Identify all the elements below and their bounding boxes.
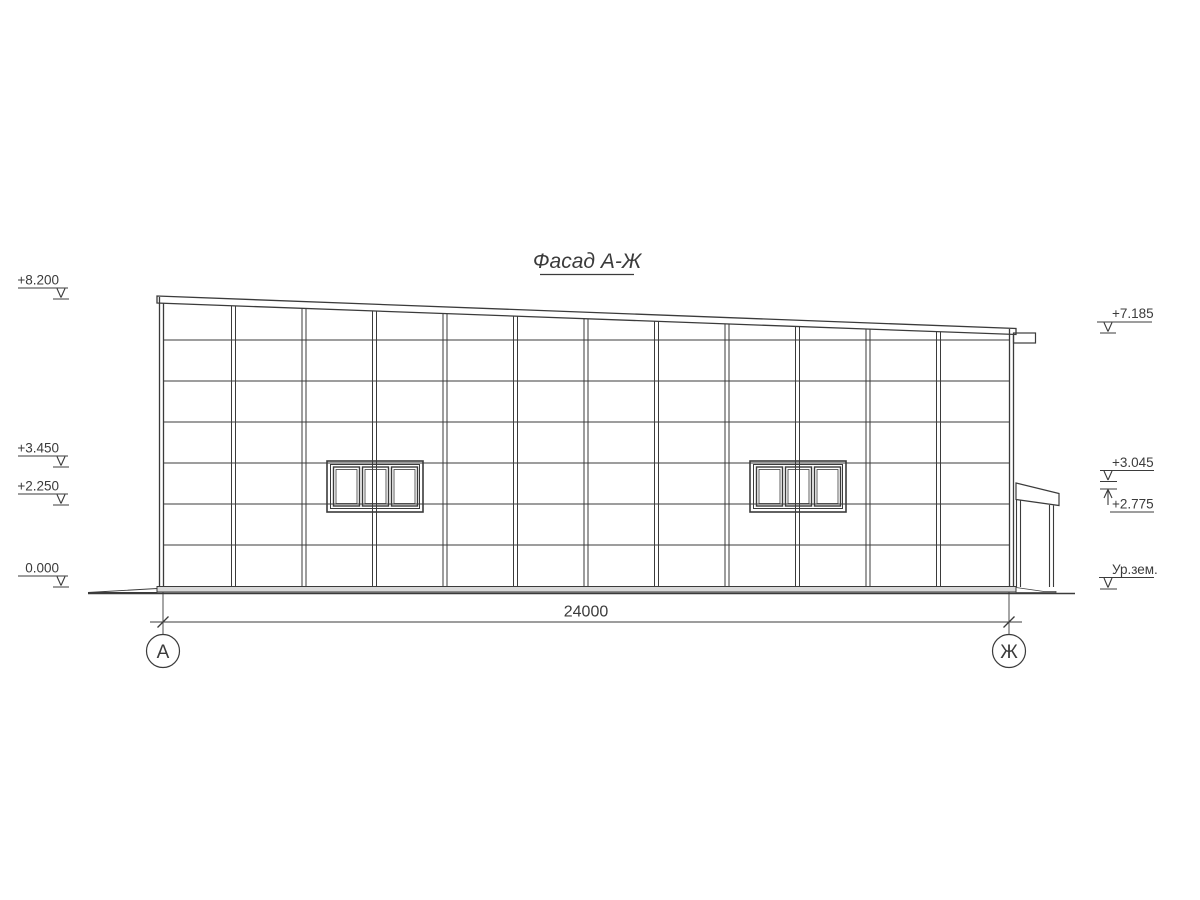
base-plinth — [157, 587, 1016, 593]
title-text: Фасад А-Ж — [533, 250, 643, 273]
window-pane — [334, 467, 360, 506]
window-inner-frame — [754, 465, 843, 509]
elevation-mark-plus2775: +2.775 — [1100, 489, 1154, 512]
elevation-label: +7.185 — [1112, 306, 1154, 321]
window-pane — [757, 467, 783, 506]
dimension-value: 24000 — [564, 604, 609, 621]
elevation-arrow-down — [1097, 322, 1152, 333]
annex-walls — [1017, 500, 1054, 588]
elevation-label: Ур.зем. — [1112, 562, 1158, 577]
elevation-label: +3.450 — [17, 441, 59, 456]
window-pane — [363, 467, 389, 506]
roof-band — [157, 296, 1016, 335]
window-inner-frame — [331, 465, 420, 509]
elevation-mark-plus2250: +2.250 — [17, 479, 69, 506]
dimension-group: 24000 А Ж — [147, 593, 1026, 668]
window-pane — [815, 467, 841, 506]
elevation-arrow-down — [1100, 471, 1154, 482]
elevation-arrow-down — [18, 576, 69, 587]
elevation-label: +2.250 — [17, 479, 59, 494]
annex-base — [1016, 588, 1056, 593]
window-pane-glass — [365, 470, 386, 504]
facade-horizontal-joints — [164, 340, 1009, 545]
window-pane — [786, 467, 812, 506]
elevation-label: +3.045 — [1112, 455, 1154, 470]
facade-left-edge — [160, 297, 164, 586]
elevation-mark-plus3450: +3.450 — [17, 441, 69, 468]
elevation-arrow-down — [18, 456, 69, 467]
facade-mullions — [232, 306, 941, 586]
axis-label-zh: Ж — [1000, 642, 1018, 663]
drawing-title: Фасад А-Ж — [533, 250, 643, 275]
window-pane-glass — [394, 470, 415, 504]
drawing-sheet: Фасад А-Ж — [0, 0, 1200, 900]
axis-label-a: А — [157, 642, 170, 663]
elevation-arrow-down — [18, 288, 69, 299]
elevation-mark-plus3045: +3.045 — [1100, 455, 1154, 482]
elevation-mark-ground-level: Ур.зем. — [1099, 562, 1158, 589]
window-pane-glass — [336, 470, 357, 504]
window-pane-glass — [759, 470, 780, 504]
ground-wedge-left — [88, 589, 157, 593]
elevation-label: 0.000 — [25, 561, 59, 576]
facade-elevation-drawing: Фасад А-Ж — [0, 0, 1200, 900]
elevation-mark-zero: 0.000 — [18, 561, 69, 588]
facade-right-edge — [1010, 329, 1014, 586]
elevation-arrow-down — [1099, 578, 1154, 590]
window-pane-glass — [817, 470, 838, 504]
elevation-mark-plus7185: +7.185 — [1097, 306, 1154, 333]
annex-fascia-hatched — [1016, 483, 1059, 506]
window-pane-glass — [788, 470, 809, 504]
elevation-mark-plus8200: +8.200 — [17, 273, 69, 300]
window-pane — [392, 467, 418, 506]
annex — [1016, 483, 1059, 593]
elevation-label: +2.775 — [1112, 497, 1154, 512]
roof-bracket — [1014, 333, 1036, 343]
elevation-arrow-down — [18, 494, 69, 505]
elevation-label: +8.200 — [17, 273, 59, 288]
